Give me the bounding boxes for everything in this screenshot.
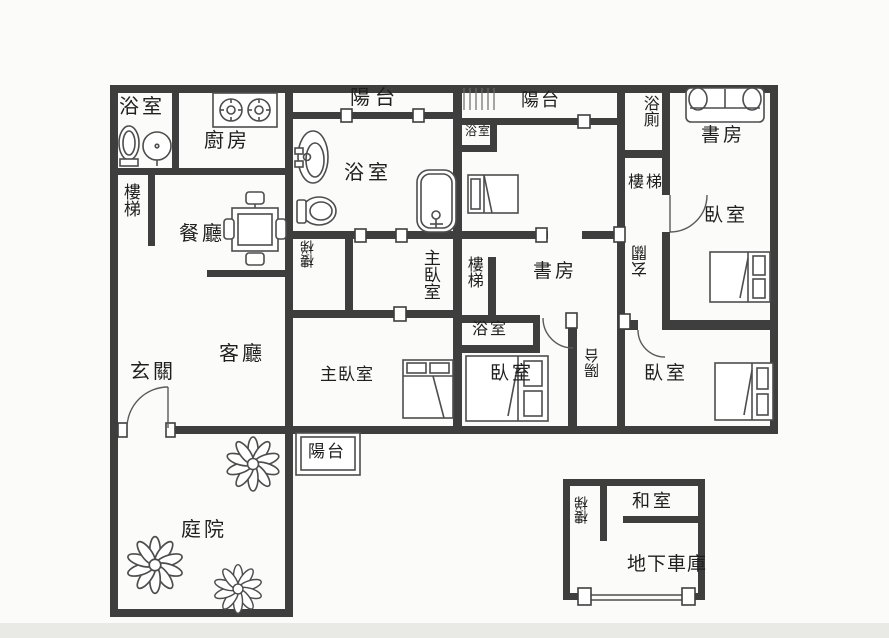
room-label-balcony-top-left: 陽台 (350, 88, 400, 109)
room-label-bathroom-middle-box: 浴室 (472, 322, 508, 339)
window-marker (355, 229, 366, 242)
room-label-tatami-room: 和室 (632, 492, 674, 511)
room-label-study-middle: 書房 (533, 262, 577, 282)
sink-icon (143, 132, 171, 166)
room-label-balcony-bottom: 陽台 (308, 443, 346, 461)
room-label-courtyard: 庭院 (181, 520, 227, 541)
room-label-garage: 地下車庫 (627, 555, 707, 575)
bedroom-door-arc (638, 330, 665, 357)
window-marker (536, 228, 547, 242)
room-label-dining-room: 餐廳 (179, 224, 225, 245)
room-label-study-top-right: 書房 (701, 126, 745, 146)
bedroom-door-arc (670, 195, 707, 232)
room-label-stairs-right: 樓梯 (628, 175, 664, 192)
door-jamb-marker (118, 423, 127, 437)
flower-icon (226, 437, 280, 491)
window-marker (396, 229, 407, 242)
dining-table-icon (224, 192, 286, 265)
room-label-bathroom-small: 浴室 (465, 125, 491, 138)
window-marker (614, 227, 625, 242)
garage-opening (590, 595, 683, 600)
bathtub-icon (417, 170, 456, 232)
room-label-master-bedroom-vertical: 主臥室 (421, 249, 439, 300)
window-marker (413, 109, 424, 122)
bed-icon (468, 175, 518, 213)
stove-icon (213, 93, 277, 127)
sink-icon (295, 131, 328, 183)
window-marker (566, 313, 577, 328)
room-label-stairs-left: 樓梯 (121, 183, 139, 217)
bed-icon (403, 360, 453, 418)
flower-icon (213, 565, 262, 614)
room-label-kitchen: 廚房 (204, 131, 250, 152)
room-label-balcony-strip: 陽台 (585, 348, 601, 378)
bed-icon (715, 363, 773, 420)
room-label-master-bedroom: 主臥室 (320, 366, 374, 384)
flower-icon (126, 537, 183, 594)
toilet-icon (297, 197, 336, 225)
room-label-bedroom-bottom-right: 臥室 (644, 364, 688, 384)
room-label-stairs-closet: 樓梯 (300, 240, 315, 268)
bottom-band (0, 623, 889, 638)
window-marker (578, 588, 591, 605)
window-marker (341, 109, 352, 122)
sofa-icon (686, 88, 764, 122)
window-marker (619, 314, 630, 329)
room-label-balcony-top-right: 陽台 (521, 91, 561, 110)
toilet-icon (119, 126, 139, 166)
floor-plan: 浴室 廚房 樓梯 餐廳 陽台 浴室 浴室 陽台 浴廁 書房 樓梯 臥室 玄關 樓… (0, 0, 889, 638)
room-label-bathroom-wc: 浴廁 (640, 95, 657, 127)
room-label-entry-right: 玄關 (634, 245, 651, 277)
room-label-stairs-garage: 樓梯 (574, 496, 589, 524)
room-label-bathroom-main: 浴室 (344, 163, 392, 184)
window-marker (394, 307, 406, 321)
room-label-stairs-middle: 樓梯 (464, 256, 481, 288)
bed-icon (710, 252, 770, 302)
room-label-entry-left: 玄關 (130, 362, 176, 383)
window-marker (578, 115, 590, 128)
room-label-bedroom-middle: 臥室 (490, 364, 534, 384)
room-label-living-room: 客廳 (219, 344, 265, 365)
entry-door-arc (127, 387, 168, 428)
window-marker (682, 588, 695, 605)
room-label-bathroom-top-left: 浴室 (119, 97, 165, 118)
room-label-bedroom-top-right: 臥室 (704, 206, 748, 226)
